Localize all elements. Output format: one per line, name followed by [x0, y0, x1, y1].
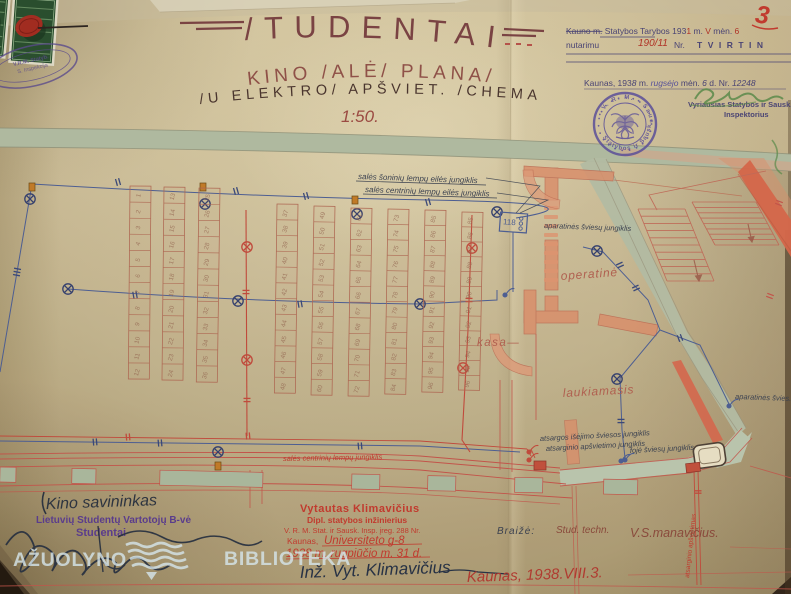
svg-text:Stud. techn.: Stud. techn. [556, 525, 609, 536]
svg-text:AŽUOLYNO: AŽUOLYNO [13, 547, 127, 571]
svg-text:Braižė:: Braižė: [497, 526, 535, 537]
svg-text:TVIRTIN: TVIRTIN [697, 40, 769, 50]
svg-text:118: 118 [503, 217, 517, 227]
svg-text:Dipl. statybos inžinierius: Dipl. statybos inžinierius [307, 515, 407, 525]
svg-text:Vytautas Klimavičius: Vytautas Klimavičius [300, 503, 420, 515]
svg-text:190/11: 190/11 [638, 38, 668, 49]
svg-text:Kauno m. Statybos Tarybos 1931: Kauno m. Statybos Tarybos 1931 m. V mėn.… [566, 26, 740, 36]
svg-text:Lietuvių Studentų Vartotojų B-: Lietuvių Studentų Vartotojų B-vė [36, 515, 191, 526]
svg-text:1:50.: 1:50. [341, 107, 379, 126]
svg-text:V. R. M. Stat. ir Sausk. Insp.: V. R. M. Stat. ir Sausk. Insp. įreg. 288… [284, 526, 420, 535]
svg-text:Kaunas,: Kaunas, [287, 536, 318, 546]
svg-text:nutarimu: nutarimu [566, 40, 599, 50]
svg-text:V.S.manavičius.: V.S.manavičius. [630, 526, 719, 540]
svg-text:kasa—: kasa— [477, 337, 520, 349]
svg-text:Inspektorius: Inspektorius [724, 110, 769, 119]
svg-text:salės centrinių lempų jungikli: salės centrinių lempų jungiklis [283, 452, 383, 463]
svg-text:BIBLIOTEKA: BIBLIOTEKA [224, 548, 351, 570]
svg-text:Kaunas, 1938 m. rugsėjo mėn.: Kaunas, 1938 m. rugsėjo mėn. 6 d. Nr. 12… [584, 78, 756, 88]
svg-text:Nr.: Nr. [674, 40, 685, 50]
